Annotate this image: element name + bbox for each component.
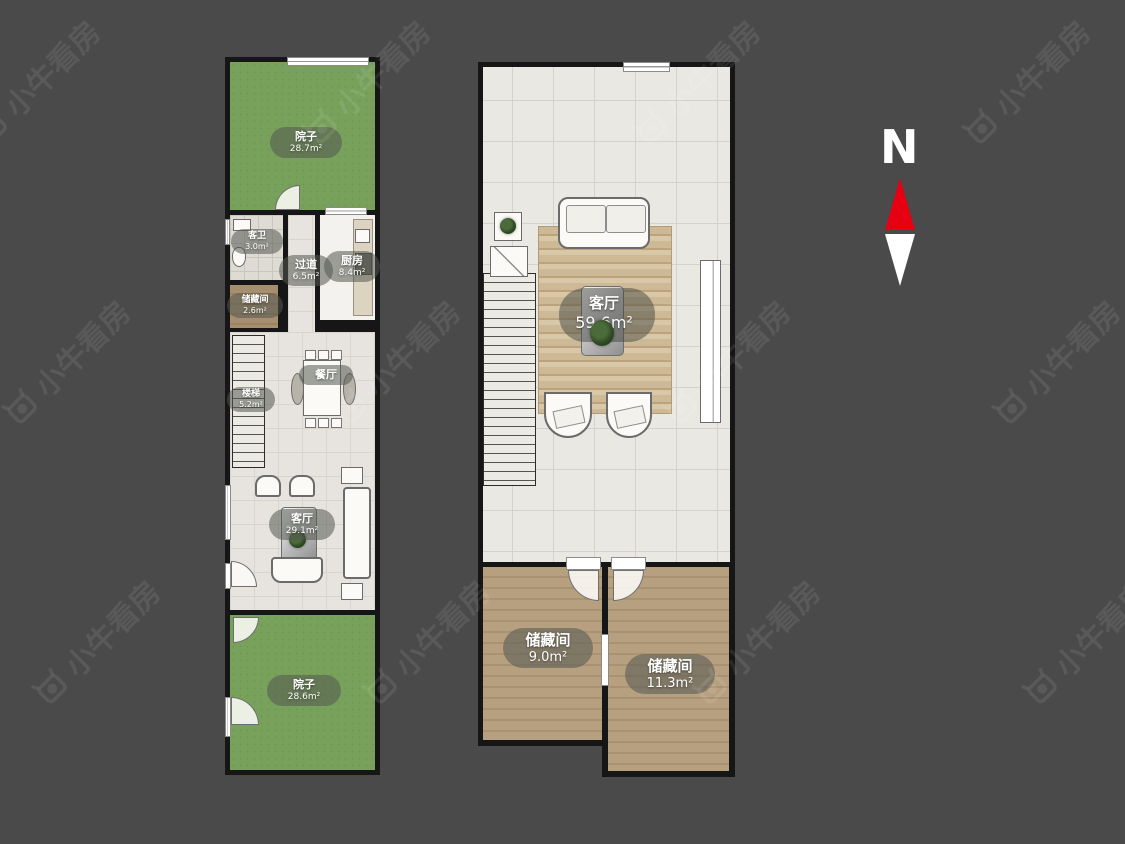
dining-seat: [305, 350, 316, 360]
chair-pillow: [552, 405, 585, 429]
side-table: [341, 467, 363, 484]
window-shelf: [700, 260, 721, 423]
kitchen-sink-icon: [355, 229, 370, 243]
floorplan-canvas: 院子 28.7m² 客卫 3.0m² 储藏间 2.6m² 过道 6.5m² 厨房…: [0, 0, 1125, 844]
sofa-long: [343, 487, 371, 579]
window-living-icon: [225, 485, 231, 540]
cow-logo-icon: [1017, 663, 1065, 711]
dining-seat: [305, 418, 316, 428]
window-bath-icon: [225, 219, 230, 245]
room-label-stairs: 楼梯 5.2m²: [227, 387, 275, 412]
room-label-kitchen: 厨房 8.4m²: [324, 251, 380, 282]
staircase-floor2: [483, 273, 536, 486]
window-kitchen-icon: [325, 207, 367, 215]
watermark-text: 小牛看房: [23, 289, 139, 405]
watermark: 小牛看房: [0, 9, 109, 155]
console-table: [490, 246, 528, 277]
chair-pillow: [613, 405, 646, 429]
watermark: 小牛看房: [953, 9, 1099, 155]
sofa-small: [271, 557, 323, 583]
door-between-storages: [601, 634, 609, 686]
watermark: 小牛看房: [983, 289, 1125, 435]
floor-plan-left: 院子 28.7m² 客卫 3.0m² 储藏间 2.6m² 过道 6.5m² 厨房…: [225, 57, 380, 775]
dining-seat: [331, 350, 342, 360]
armchair: [289, 475, 315, 497]
door-storage-left: [566, 557, 601, 570]
gate-top-yard: [287, 57, 369, 66]
cow-logo-icon: [957, 103, 1005, 151]
watermark-text: 小牛看房: [1013, 289, 1125, 405]
dining-seat: [318, 350, 329, 360]
watermark: 小牛看房: [23, 569, 169, 715]
room-label-living1: 客厅 29.1m²: [269, 509, 335, 540]
room-label-yard-top: 院子 28.7m²: [270, 127, 342, 158]
sofa-cushion: [606, 205, 646, 233]
dining-seat: [318, 418, 329, 428]
chair: [606, 392, 652, 438]
armchair: [255, 475, 281, 497]
watermark: 小牛看房: [0, 289, 139, 435]
watermark-text: 小牛看房: [0, 9, 109, 125]
compass-needle-icon: [884, 176, 916, 288]
floor-plan-right: 客厅 59.6m² 储藏间 9.0m² 储藏间 11.3m²: [478, 62, 735, 777]
room-label-storage-small: 储藏间 2.6m²: [227, 293, 283, 318]
room-label-dining: 餐厅: [299, 365, 353, 385]
compass-north-label: N: [880, 120, 919, 174]
cow-logo-icon: [0, 383, 45, 431]
plant-icon: [500, 218, 516, 234]
sofa-cushion: [566, 205, 606, 233]
dining-seat: [331, 418, 342, 428]
watermark-text: 小牛看房: [53, 569, 169, 685]
watermark: 小牛看房: [1013, 569, 1125, 715]
cow-logo-icon: [987, 383, 1035, 431]
room-label-bath: 客卫 3.0m²: [231, 229, 283, 254]
watermark-text: 小牛看房: [1043, 569, 1125, 685]
cow-logo-icon: [0, 103, 15, 151]
room-label-yard-bottom: 院子 28.6m²: [267, 675, 341, 706]
side-table: [341, 583, 363, 600]
cow-logo-icon: [27, 663, 75, 711]
room-label-storage-left: 储藏间 9.0m²: [503, 628, 593, 668]
room-label-storage-right: 储藏间 11.3m²: [625, 654, 715, 694]
plant-icon: [590, 320, 614, 346]
door-top-living2: [623, 62, 670, 72]
watermark-text: 小牛看房: [983, 9, 1099, 125]
sofa-main: [558, 197, 650, 249]
door-storage-right: [611, 557, 646, 570]
chair: [544, 392, 592, 438]
